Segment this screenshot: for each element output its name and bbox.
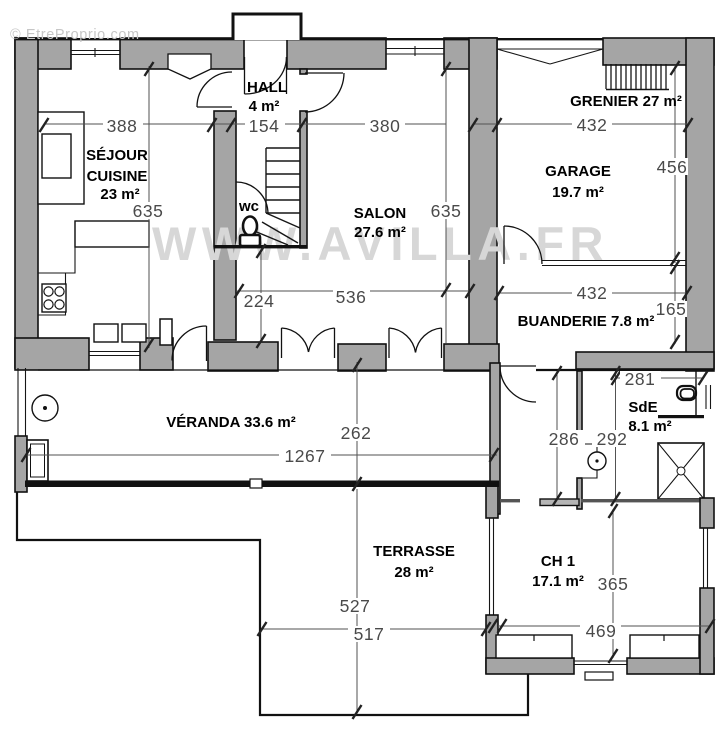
svg-text:GARAGE: GARAGE <box>545 163 611 180</box>
svg-text:154: 154 <box>249 116 280 136</box>
svg-text:281: 281 <box>625 369 656 389</box>
svg-text:635: 635 <box>133 201 164 221</box>
svg-text:28 m²: 28 m² <box>394 564 433 581</box>
svg-text:CH 1: CH 1 <box>541 553 575 570</box>
svg-text:HALL: HALL <box>247 79 287 96</box>
svg-text:365: 365 <box>598 574 629 594</box>
svg-text:17.1 m²: 17.1 m² <box>532 573 584 590</box>
svg-text:23 m²: 23 m² <box>100 186 139 203</box>
svg-text:BUANDERIE 7.8 m²: BUANDERIE 7.8 m² <box>518 313 655 330</box>
svg-text:CUISINE: CUISINE <box>87 168 148 185</box>
svg-text:TERRASSE: TERRASSE <box>373 543 455 560</box>
svg-text:8.1 m²: 8.1 m² <box>628 418 671 435</box>
svg-text:1267: 1267 <box>285 446 326 466</box>
svg-text:292: 292 <box>597 429 628 449</box>
svg-text:262: 262 <box>341 423 372 443</box>
svg-text:4 m²: 4 m² <box>249 98 280 115</box>
svg-text:19.7 m²: 19.7 m² <box>552 184 604 201</box>
svg-text:165: 165 <box>656 299 687 319</box>
svg-text:517: 517 <box>354 624 385 644</box>
svg-text:527: 527 <box>340 596 371 616</box>
svg-text:SALON: SALON <box>354 205 407 222</box>
svg-text:SÉJOUR: SÉJOUR <box>86 147 148 164</box>
svg-text:469: 469 <box>586 621 617 641</box>
svg-text:SdE: SdE <box>628 399 657 416</box>
svg-text:224: 224 <box>244 291 275 311</box>
svg-text:432: 432 <box>577 283 608 303</box>
svg-text:432: 432 <box>577 115 608 135</box>
svg-text:635: 635 <box>431 201 462 221</box>
svg-text:VÉRANDA 33.6 m²: VÉRANDA 33.6 m² <box>166 414 295 431</box>
svg-text:380: 380 <box>370 116 401 136</box>
svg-text:wc: wc <box>238 198 259 215</box>
svg-text:536: 536 <box>336 287 367 307</box>
svg-text:27.6 m²: 27.6 m² <box>354 224 406 241</box>
svg-text:GRENIER 27 m²: GRENIER 27 m² <box>570 93 682 110</box>
svg-text:286: 286 <box>549 429 580 449</box>
svg-text:456: 456 <box>657 157 688 177</box>
svg-text:388: 388 <box>107 116 138 136</box>
svg-text:© EtreProprio.com: © EtreProprio.com <box>10 27 140 43</box>
